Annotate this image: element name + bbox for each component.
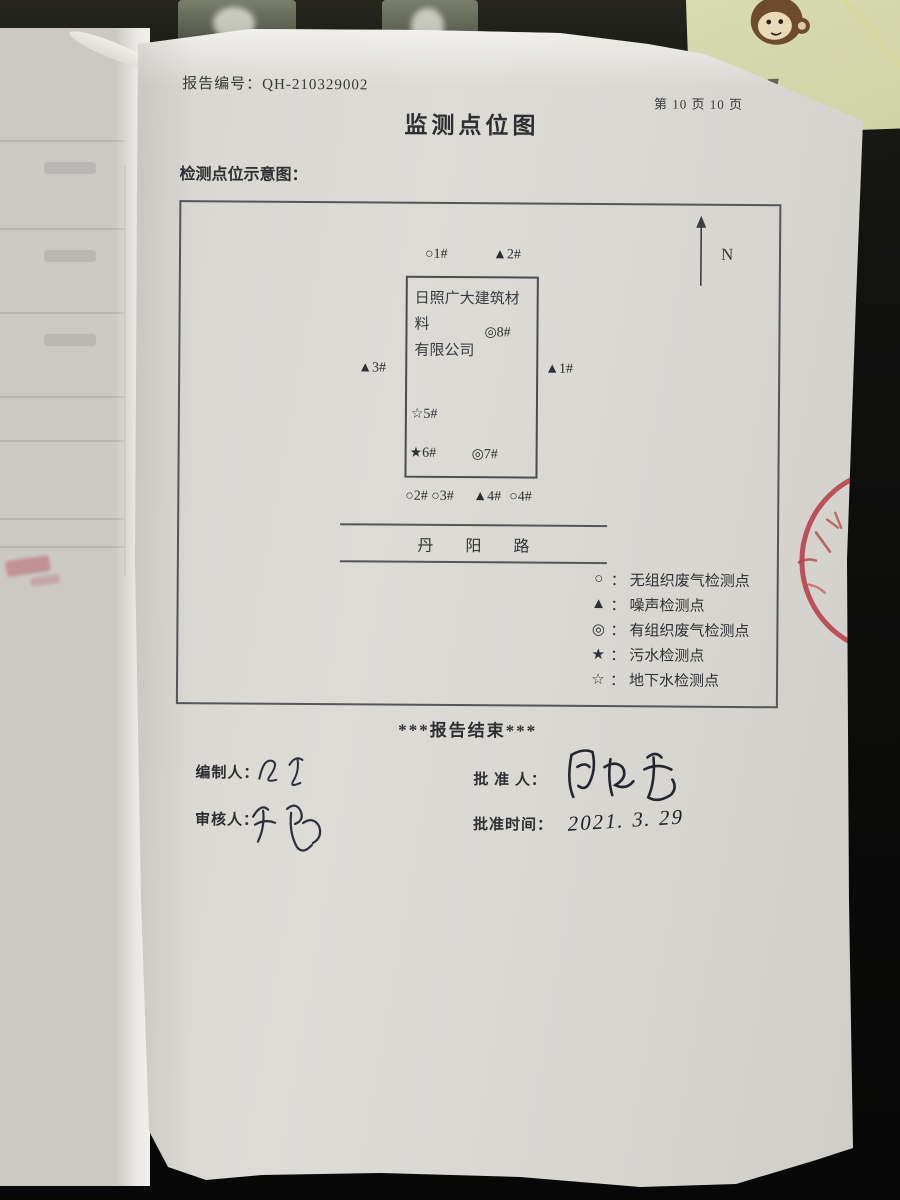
underlying-page — [0, 28, 150, 1186]
north-arrow: N — [687, 214, 758, 299]
legend: ○：无组织废气检测点 ▲：噪声检测点 ◎：有组织废气检测点 ★：污水检测点 ☆：… — [588, 567, 750, 693]
report-number-value: QH-210329002 — [262, 77, 368, 94]
legend-item: ▲：噪声检测点 — [588, 592, 749, 618]
legend-colon: ： — [611, 594, 626, 615]
approval-date-text: 2021. 3. 29 — [566, 805, 686, 836]
approval-time-label: 批准时间： — [473, 813, 553, 835]
monitor-point: ◎8# — [484, 324, 510, 341]
monitor-point: ▲2# — [493, 247, 521, 263]
legend-item: ◎：有组织废气检测点 — [588, 617, 749, 643]
monitor-point: ▲4# — [473, 489, 501, 505]
monitor-point: ◎7# — [472, 446, 498, 463]
monitor-point: ★6# — [410, 445, 437, 462]
underlying-table-line — [0, 140, 125, 142]
legend-symbol: ◎ — [588, 620, 608, 639]
legend-label: 无组织废气检测点 — [630, 569, 750, 591]
north-label: N — [721, 245, 733, 264]
approver-label: 批 准 人： — [473, 768, 547, 790]
monitor-point: ▲1# — [545, 362, 573, 378]
underlying-table-line — [0, 396, 125, 398]
legend-item: ☆：地下水检测点 — [588, 667, 749, 693]
company-name-line1: 日照广大建筑材料 — [414, 286, 531, 339]
legend-symbol: ☆ — [588, 670, 608, 689]
monkey-illustration — [734, 0, 827, 74]
preparer-signature — [249, 747, 329, 793]
legend-colon: ： — [610, 644, 625, 665]
monitor-point: ○4# — [509, 489, 532, 505]
underlying-table-line — [0, 518, 125, 520]
report-number-label: 报告编号： — [182, 76, 262, 93]
legend-label: 污水检测点 — [629, 644, 704, 666]
monitor-point: ☆5# — [411, 406, 438, 423]
legend-label: 噪声检测点 — [630, 594, 705, 616]
monitor-point: ▲3# — [358, 360, 386, 376]
legend-colon: ： — [611, 569, 626, 590]
section-label: 检测点位示意图： — [180, 160, 308, 185]
monitor-point: ○3# — [431, 489, 454, 505]
underlying-text-blur — [44, 250, 96, 262]
reviewer-signature — [241, 793, 341, 856]
photo-scene: 报告编号：QH-210329002 第 10 页 10 页 监测点位图 检测点位… — [0, 0, 900, 1200]
report-number-line: 报告编号：QH-210329002 — [182, 72, 368, 94]
company-name-line2: 有限公司 — [414, 338, 531, 365]
road: 丹阳路 — [340, 523, 607, 564]
legend-item: ○：无组织废气检测点 — [589, 567, 750, 593]
underlying-table-line — [0, 228, 125, 230]
approval-date-handwriting: 2021. 3. 29 — [561, 801, 711, 847]
company-name: 日照广大建筑材料 有限公司 — [407, 278, 537, 365]
red-ink-bleed — [5, 555, 51, 577]
underlying-table-line — [0, 312, 125, 314]
underlying-text-blur — [44, 162, 96, 174]
legend-colon: ： — [610, 669, 625, 690]
legend-symbol: ★ — [588, 645, 608, 664]
underlying-text-blur — [44, 334, 96, 346]
underlying-table-line — [0, 440, 125, 442]
road-name: 丹阳路 — [417, 531, 561, 556]
legend-item: ★：污水检测点 — [588, 642, 749, 668]
monitor-point: ○1# — [425, 247, 448, 263]
legend-symbol: ○ — [589, 571, 609, 588]
document-title: 监测点位图 — [312, 105, 632, 141]
monitor-point: ○2# — [405, 489, 428, 505]
legend-label: 地下水检测点 — [629, 669, 719, 691]
underlying-table-line — [0, 546, 125, 548]
page-indicator: 第 10 页 10 页 — [654, 93, 743, 113]
legend-label: 有组织废气检测点 — [629, 619, 749, 641]
red-ink-bleed — [30, 574, 61, 587]
legend-symbol: ▲ — [589, 596, 609, 613]
legend-colon: ： — [610, 619, 625, 640]
